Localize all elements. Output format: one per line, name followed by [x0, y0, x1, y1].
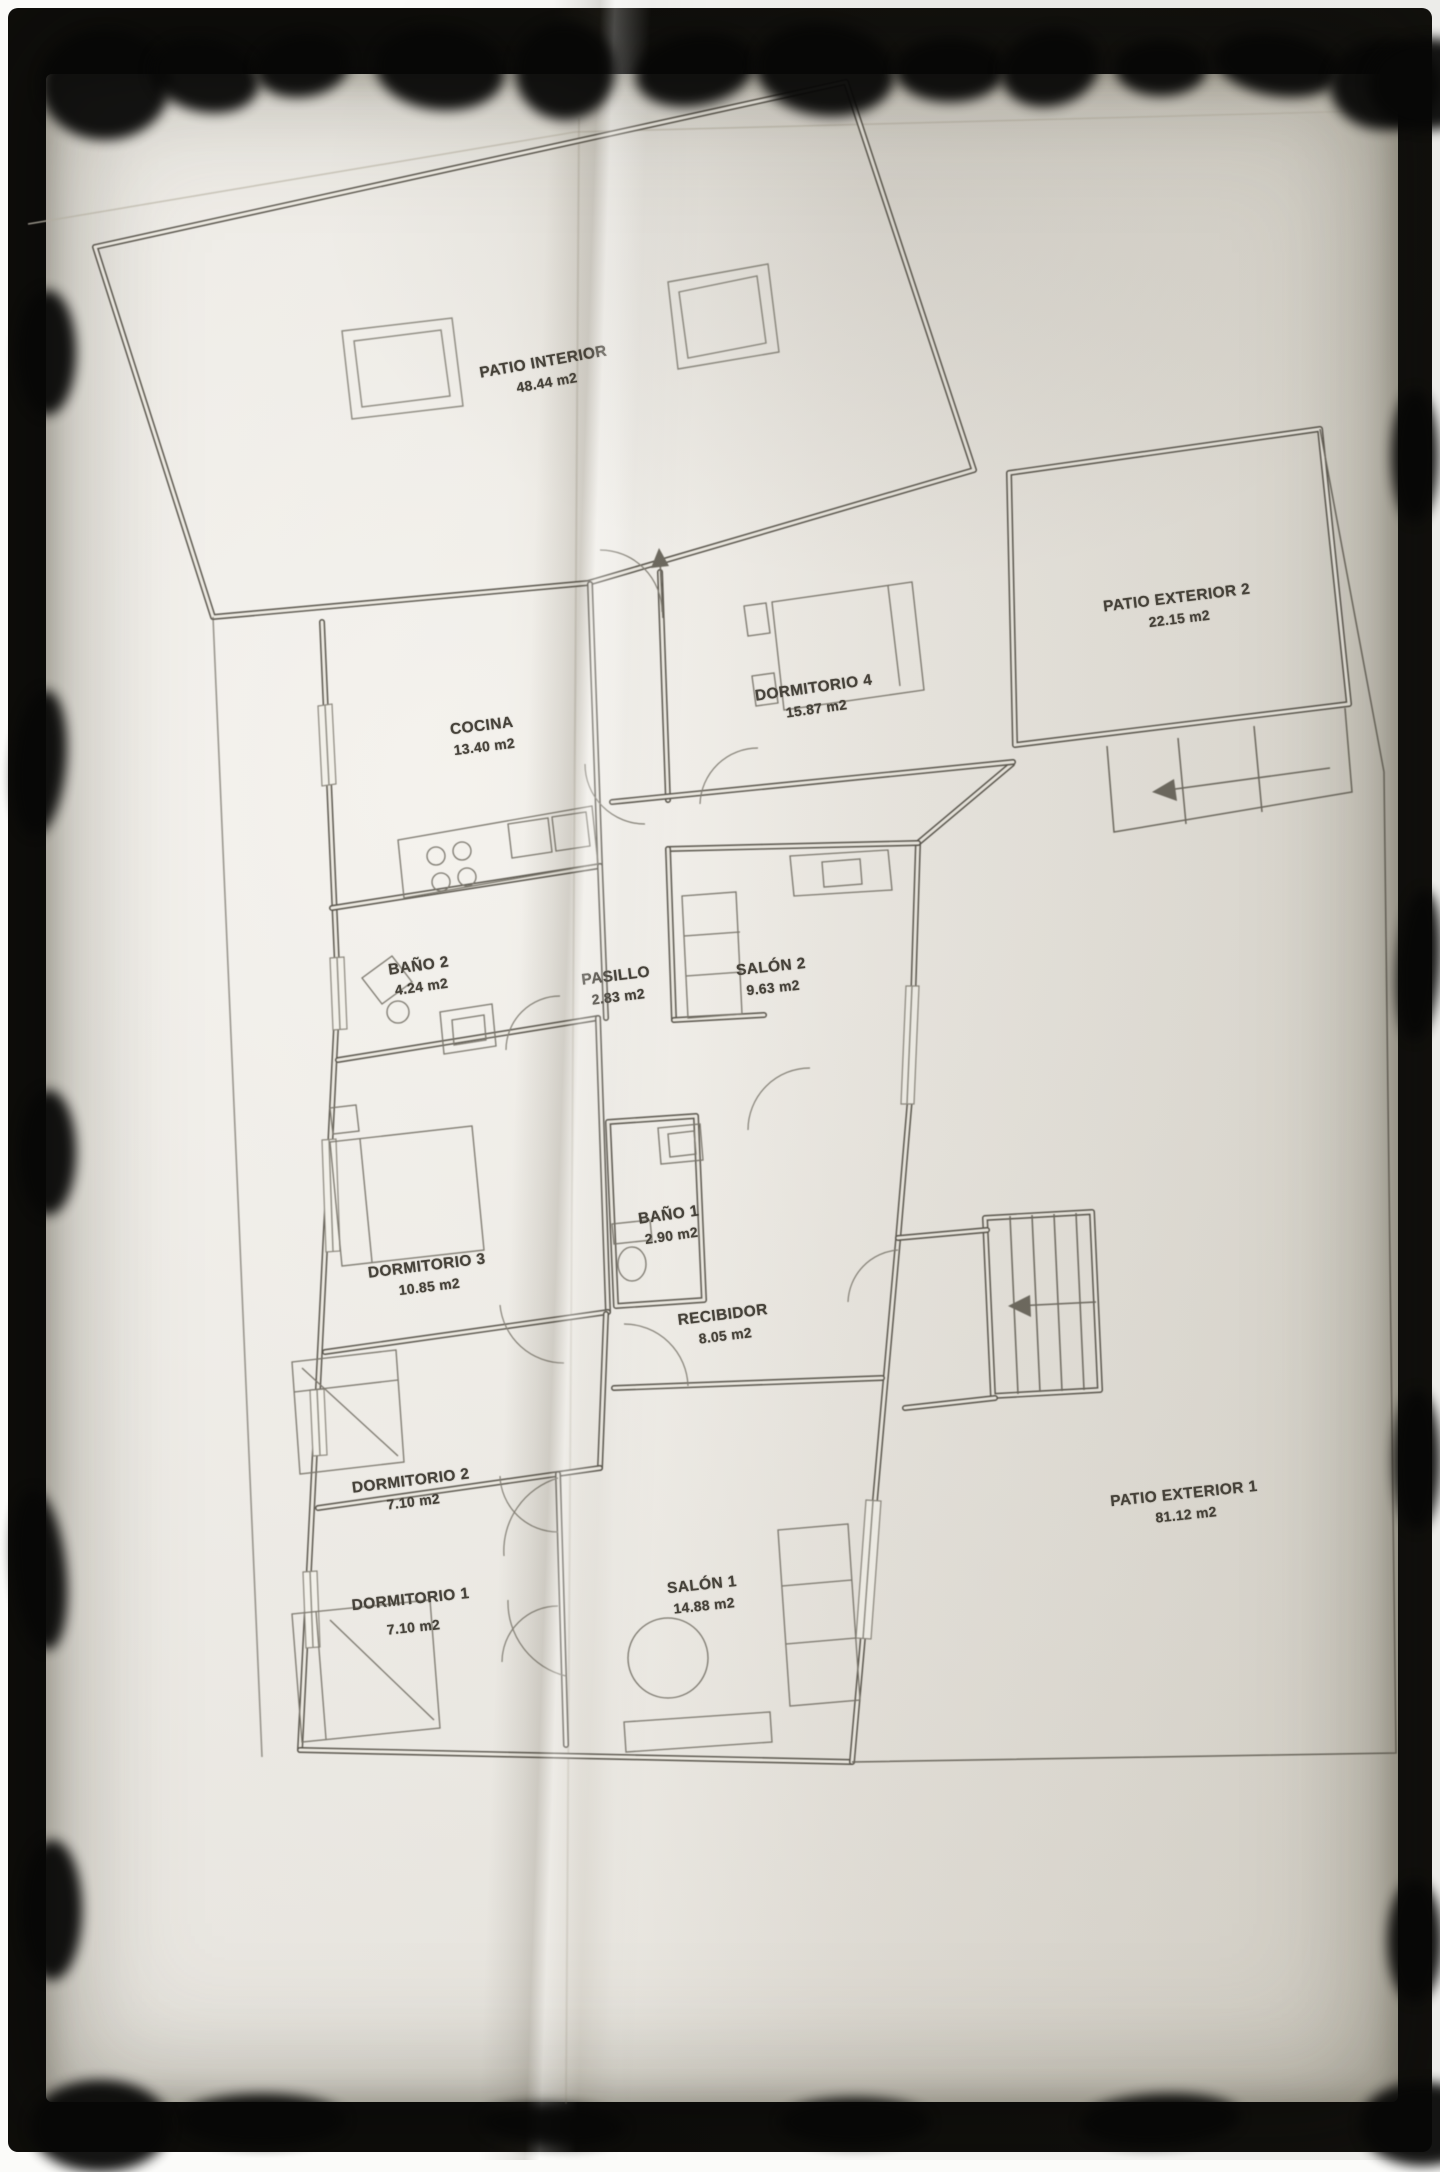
scanned-floor-plan-photo: { "plan": { "rooms": [ {"id": "patio-int… [0, 0, 1440, 2160]
staircase [1008, 1213, 1096, 1394]
skylight-squares [342, 264, 779, 419]
walls-layer [95, 82, 1396, 1762]
floor-plan-drawing [0, 0, 1440, 2160]
